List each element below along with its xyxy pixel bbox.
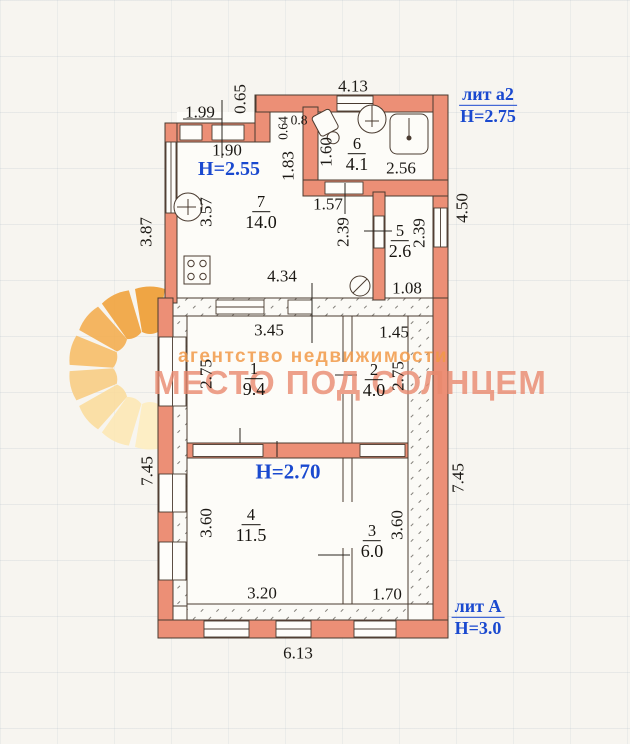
stove-icon	[184, 256, 210, 284]
floor-plan-drawing	[0, 0, 630, 744]
shower-tray-icon	[390, 114, 428, 154]
bath-sink-icon	[358, 105, 386, 133]
scanned-floor-plan-page: агентство недвижимости МЕСТО ПОД СОЛНЦЕМ…	[0, 0, 630, 744]
gas-meter-icon	[350, 276, 370, 296]
partition-walls	[343, 316, 352, 604]
kitchen-sink-icon	[174, 193, 202, 221]
